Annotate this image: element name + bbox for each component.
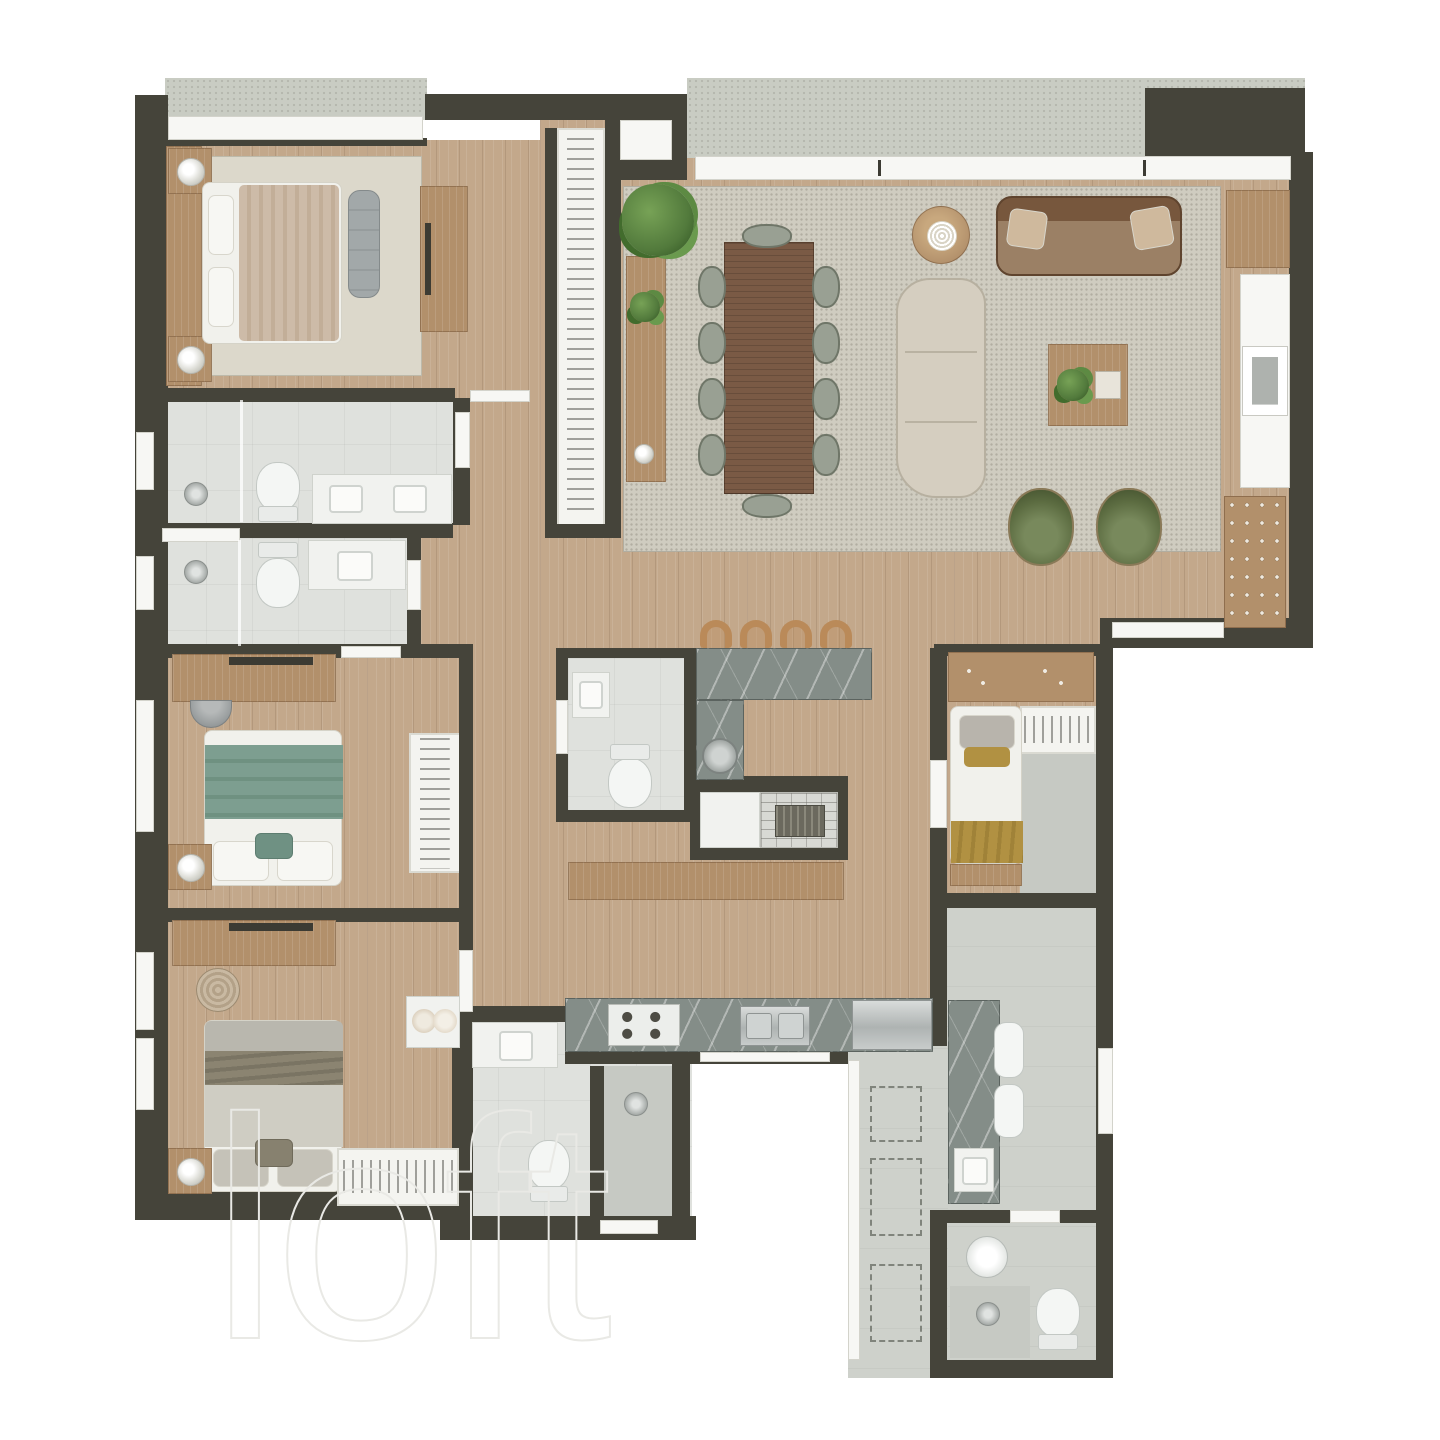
pillow [208, 195, 234, 255]
blanket [239, 185, 339, 341]
bar-stool [780, 620, 812, 648]
tv [229, 923, 313, 931]
framed-art [1242, 346, 1288, 416]
master-closet-hangers [557, 128, 605, 526]
toilet [256, 462, 300, 512]
green-armchair [1008, 488, 1074, 566]
cushion [255, 833, 293, 859]
dining-chair [812, 322, 840, 364]
bar-stool [740, 620, 772, 648]
wall-entry-band [425, 94, 687, 120]
mustard-blanket [951, 821, 1023, 863]
wall-kitchen-maid [930, 648, 947, 1046]
door-gap-bedroom3 [459, 950, 473, 1012]
wall-top-right-block [1145, 88, 1305, 158]
towel-roll [433, 1009, 457, 1033]
bedroom3-towel-box [406, 996, 460, 1048]
dining-chair [698, 378, 726, 420]
bedroom2-bed [204, 730, 342, 886]
toilet-tank [258, 506, 298, 522]
master-bed [202, 182, 342, 344]
wall-powder-top [556, 648, 696, 658]
powder-toilet-tank [610, 744, 650, 760]
wall-powder-bottom [556, 810, 696, 822]
barbecue-grill [760, 792, 838, 848]
wall-grill-bottom [690, 848, 848, 860]
bedroom2-wardrobe-hangers [409, 733, 461, 873]
living-wood-cabinet [1226, 190, 1290, 268]
appliance-spot-dashed [870, 1158, 922, 1236]
bar-stool [820, 620, 852, 648]
sliding-door-track-mark [1143, 160, 1146, 176]
toilet-tank [258, 542, 298, 558]
wall-service-right [1096, 648, 1113, 1378]
kitchen-sideboard [568, 862, 844, 900]
corner-round-sink [702, 738, 738, 774]
door-gap-bathroom2 [407, 560, 421, 610]
lamp [177, 346, 205, 374]
shower-head [184, 482, 208, 506]
grill-side-counter [700, 792, 760, 848]
dining-chair [698, 266, 726, 308]
tv [425, 223, 431, 295]
cooktop [608, 1004, 680, 1046]
sofa-pillow [1006, 208, 1049, 251]
dining-chair [698, 434, 726, 476]
buffet-plant [630, 292, 660, 322]
shower-head [184, 560, 208, 584]
laundry-sink [954, 1148, 994, 1192]
terrace-floor-main [687, 78, 1145, 158]
window-laundry-left [848, 1060, 860, 1360]
door-gap-bathroom1 [455, 412, 470, 468]
service-round-sink [966, 1236, 1008, 1278]
wash-basin [994, 1022, 1024, 1078]
wall-grill-right [838, 792, 848, 852]
sink-bowl [778, 1013, 804, 1039]
window-kitchen-south [700, 1052, 830, 1062]
grill-grate [775, 805, 825, 837]
towel-niche [162, 528, 240, 542]
bedroom2-nightstand [168, 844, 212, 890]
powder-sink [572, 672, 610, 718]
wall-service-bottom [930, 1360, 1113, 1378]
door-gap-maid [930, 760, 947, 828]
bedroom3-pouf [196, 968, 240, 1012]
powder-toilet [608, 758, 652, 808]
bar-stool [700, 620, 732, 648]
table-centerpiece [927, 221, 957, 251]
wash-basin [994, 1084, 1024, 1138]
door-gap-powder [556, 700, 568, 754]
coffee-table-tray [1095, 371, 1121, 399]
dining-chair [742, 224, 792, 248]
sink [579, 681, 603, 709]
shower-glass [240, 400, 243, 522]
window-bedroom2-left [136, 700, 154, 832]
wall-grill-left [690, 792, 700, 852]
cushion [964, 747, 1010, 767]
wall-maid-bottom [930, 893, 1113, 908]
window-living-south [1112, 622, 1224, 638]
dining-chair [812, 434, 840, 476]
green-blanket [205, 745, 343, 819]
maid-bed-bench [950, 864, 1022, 886]
bedroom3-desk [172, 920, 336, 966]
sink [337, 551, 373, 581]
door-gap-master [470, 390, 530, 402]
lamp [177, 158, 205, 186]
wine-rack [1224, 496, 1286, 628]
wall-right-living [1289, 152, 1313, 648]
green-armchair [1096, 488, 1162, 566]
wall-entry-frame-bottom [605, 160, 687, 180]
window-bathroom1-left [136, 432, 154, 490]
master-bedroom-window-sill [168, 116, 423, 140]
wall-entry-frame-right [671, 118, 687, 164]
lamp [177, 1158, 205, 1186]
pillow [208, 267, 234, 327]
toilet-tank [1038, 1334, 1078, 1350]
window-bedroom3-left-b [136, 1038, 154, 1110]
shower-head [976, 1302, 1000, 1326]
master-tv-console [420, 186, 468, 332]
pillow [959, 715, 1015, 749]
window-bathroom2-left [136, 556, 154, 610]
buffet-decor [634, 444, 654, 464]
round-side-table [912, 206, 970, 264]
sink [962, 1157, 988, 1185]
lamp [177, 854, 205, 882]
sliding-door-track-mark [878, 160, 881, 176]
dining-chair [812, 378, 840, 420]
loft-watermark: loft [210, 1072, 810, 1440]
coffee-table [1048, 344, 1128, 426]
toilet [256, 558, 300, 608]
maid-closet-floor [1020, 754, 1096, 894]
door-gap-bedroom2 [341, 646, 401, 658]
double-sink [740, 1006, 810, 1046]
tv [229, 657, 313, 665]
stainless-appliance [852, 1000, 932, 1050]
wall-service-bath-left [930, 1210, 947, 1370]
bedroom3-nightstand [168, 1148, 212, 1194]
entry-door [620, 120, 672, 160]
dining-chair [742, 494, 792, 518]
beige-modular-sofa [896, 278, 986, 498]
appliance-spot-dashed [870, 1086, 922, 1142]
wall-master-closet-left [545, 128, 557, 532]
dining-chair [812, 266, 840, 308]
window-service-right [1098, 1048, 1113, 1134]
wall-master-closet-right [605, 182, 621, 532]
master-foot-bench [348, 190, 380, 298]
double-vanity [312, 474, 452, 524]
maid-slatted-shelf [1020, 706, 1096, 754]
sink [393, 485, 427, 513]
window-bedroom3-left-a [136, 952, 154, 1030]
wall-master-south [150, 388, 455, 402]
floor-plan-canvas: loft [0, 0, 1440, 1440]
sofa-pillow [1129, 205, 1175, 251]
maid-bed [950, 706, 1022, 864]
dining-chair [698, 322, 726, 364]
toilet [1036, 1288, 1080, 1338]
door-gap-service-bath [1010, 1210, 1060, 1223]
maid-shelf [948, 652, 1094, 702]
tall-plant [622, 184, 694, 256]
shower-glass [238, 540, 241, 646]
living-sliding-door-sill [695, 156, 1291, 180]
terrace-floor-left [165, 78, 427, 120]
bedroom2-desk [172, 654, 336, 702]
vanity [308, 540, 406, 590]
leather-sofa [996, 196, 1182, 276]
sink [329, 485, 363, 513]
coffee-table-plant [1057, 369, 1089, 401]
dining-table [724, 242, 814, 494]
kitchen-bar-counter [696, 648, 872, 700]
appliance-spot-dashed [870, 1264, 922, 1342]
wall-master-closet-bottom [545, 524, 621, 538]
sink-bowl [746, 1013, 772, 1039]
